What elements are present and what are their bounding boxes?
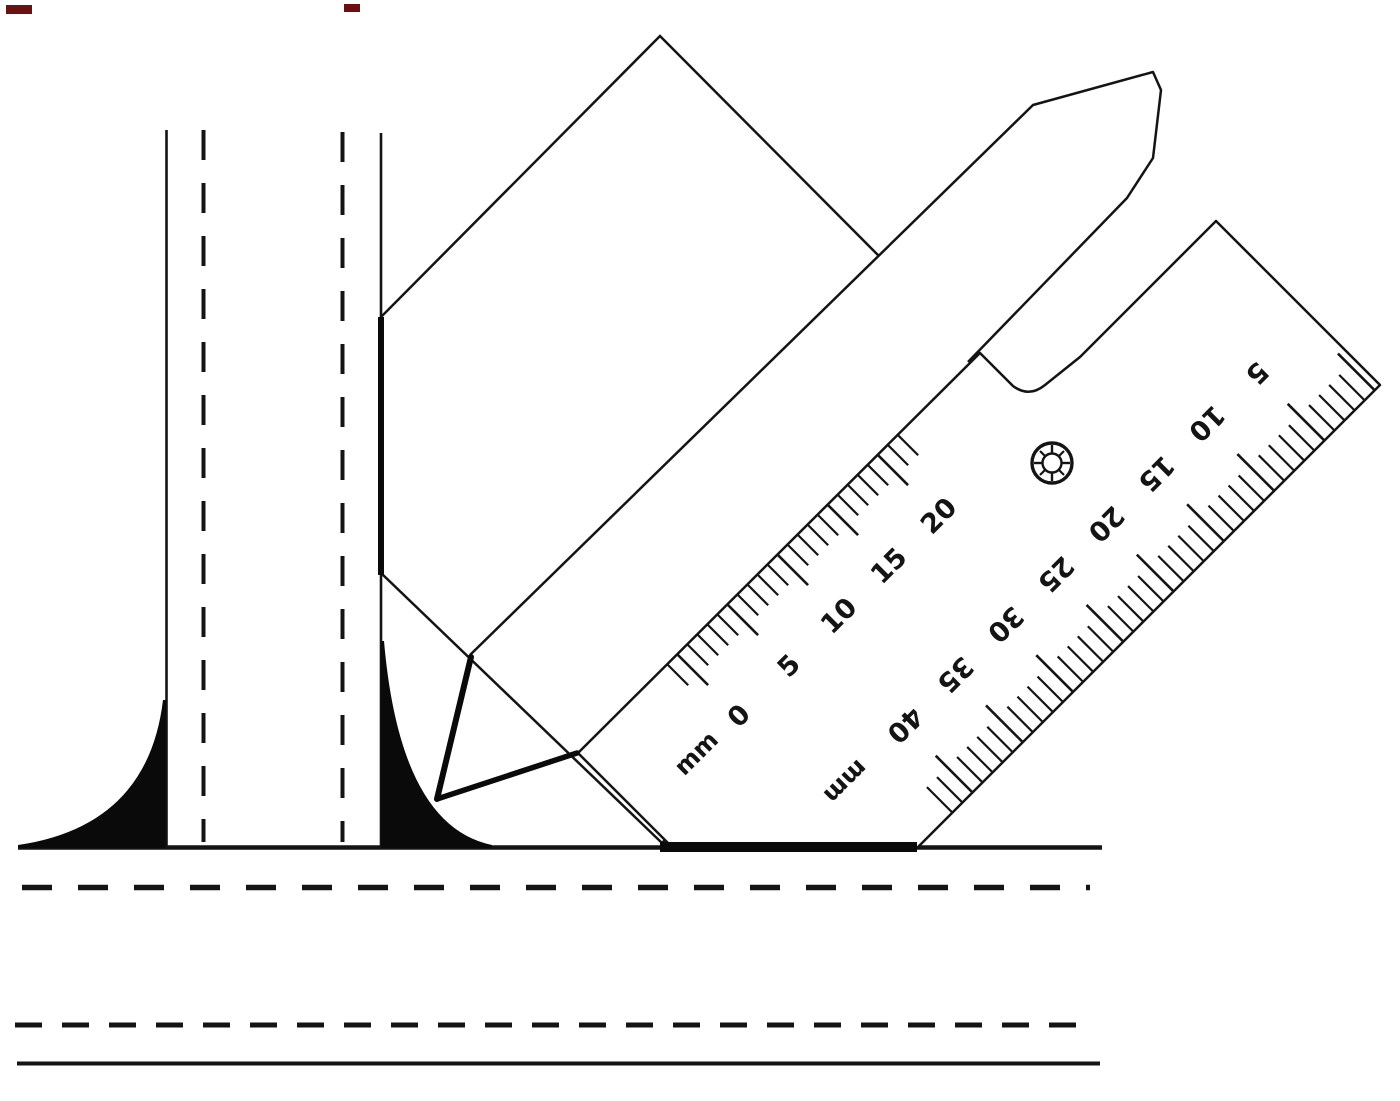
weld-gauge-diagram: 05101520mm403530252015105mm — [0, 0, 1400, 1101]
diagram-canvas: 05101520mm403530252015105mm — [0, 0, 1400, 1101]
ruler-contact-bar — [660, 842, 917, 852]
scan-artifact — [6, 5, 32, 14]
scan-artifact — [344, 4, 360, 12]
